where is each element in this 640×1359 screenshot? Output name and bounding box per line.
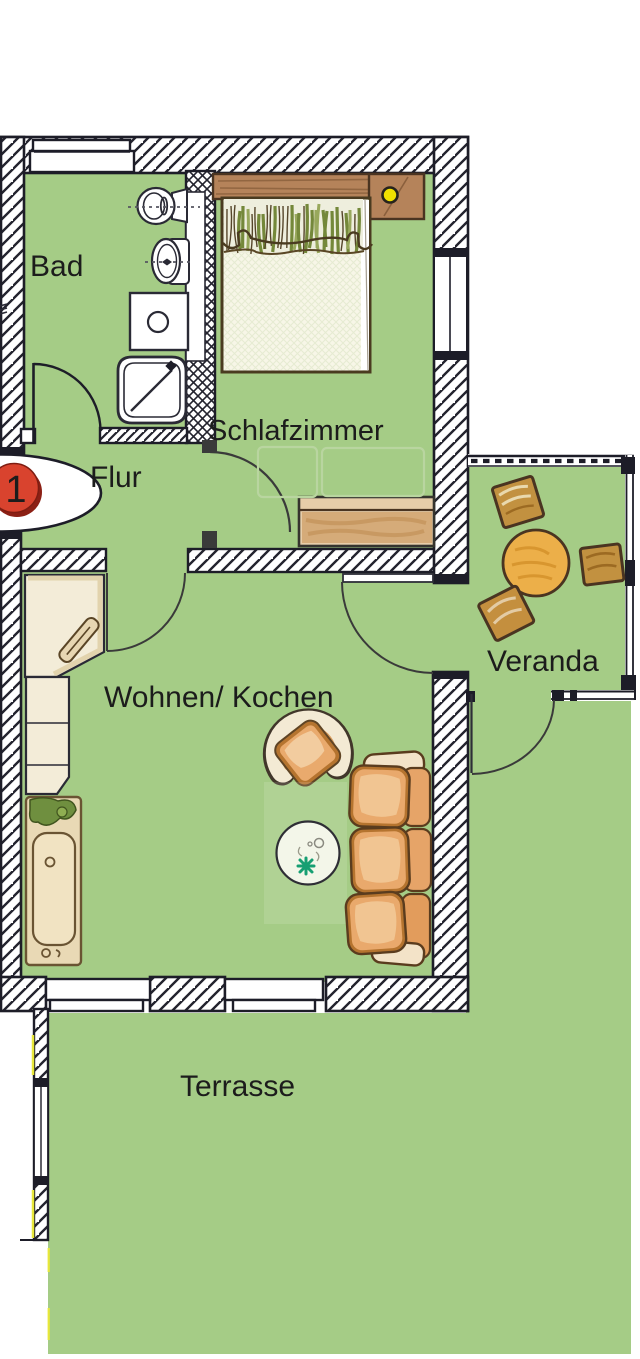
svg-text:Flur: Flur [90, 461, 142, 494]
svg-text:Schlafzimmer: Schlafzimmer [208, 415, 384, 447]
svg-text:Terrasse: Terrasse [180, 1070, 295, 1103]
svg-text:Bad: Bad [30, 250, 83, 283]
svg-text:Veranda: Veranda [487, 645, 599, 678]
svg-text:Wohnen/ Kochen: Wohnen/ Kochen [104, 681, 334, 714]
svg-text:1: 1 [5, 469, 26, 511]
